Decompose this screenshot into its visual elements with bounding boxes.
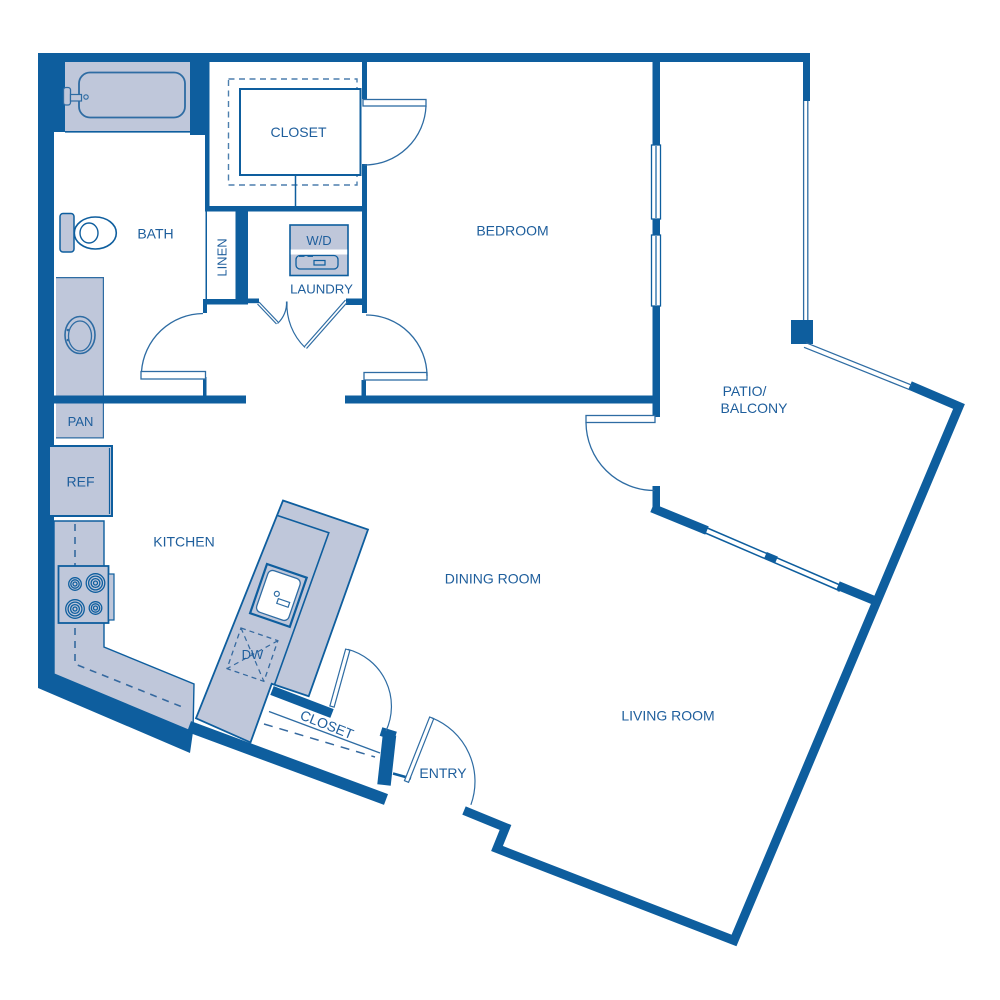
svg-text:BEDROOM: BEDROOM xyxy=(476,223,548,239)
svg-text:LAUNDRY: LAUNDRY xyxy=(290,282,353,297)
svg-text:DINING ROOM: DINING ROOM xyxy=(445,571,541,587)
svg-text:PAN: PAN xyxy=(68,414,94,429)
svg-text:CLOSET: CLOSET xyxy=(270,124,326,140)
svg-text:LIVING ROOM: LIVING ROOM xyxy=(621,708,714,724)
svg-text:KITCHEN: KITCHEN xyxy=(153,534,214,550)
svg-text:LINEN: LINEN xyxy=(215,238,230,276)
svg-text:PATIO/: PATIO/ xyxy=(723,383,767,399)
svg-text:ENTRY: ENTRY xyxy=(419,765,467,781)
svg-text:W/D: W/D xyxy=(306,233,331,248)
svg-text:DW: DW xyxy=(242,647,264,662)
svg-text:REF: REF xyxy=(67,474,95,490)
svg-text:BATH: BATH xyxy=(137,226,173,242)
svg-text:BALCONY: BALCONY xyxy=(721,400,789,416)
